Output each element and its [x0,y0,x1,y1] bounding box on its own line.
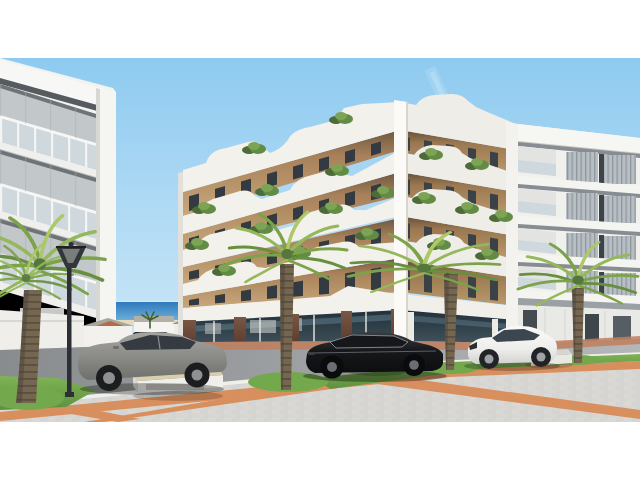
property-render-photo [0,58,640,422]
render-scene [0,58,640,422]
left-apartment-building [0,58,116,346]
page [0,0,640,480]
